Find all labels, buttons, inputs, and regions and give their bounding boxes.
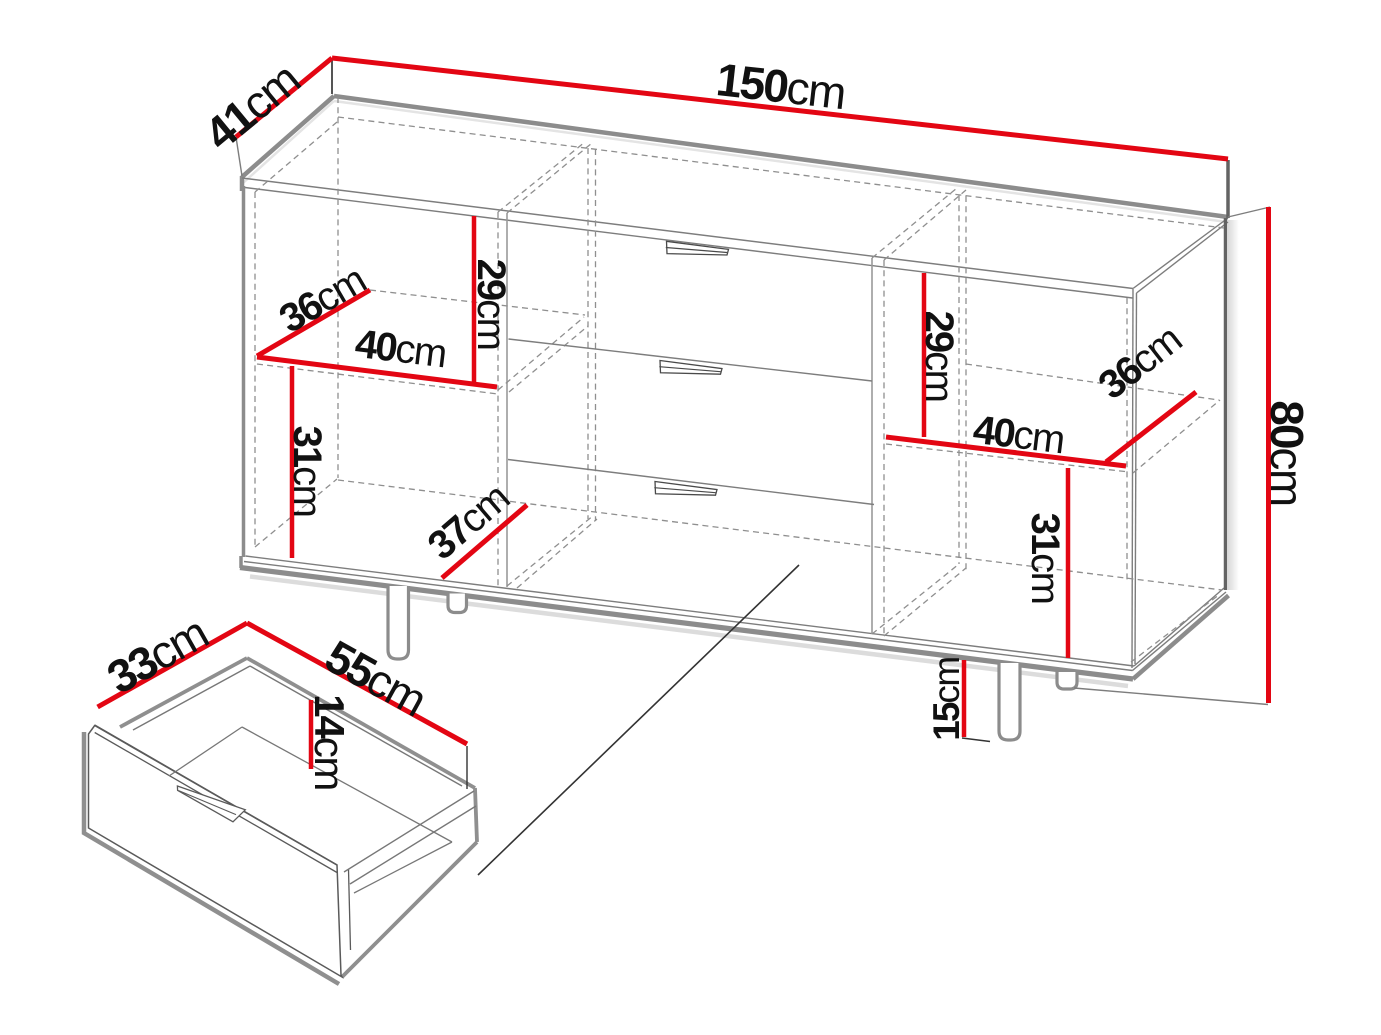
- svg-text:80cm: 80cm: [1261, 400, 1313, 506]
- svg-text:31cm: 31cm: [1023, 513, 1067, 604]
- svg-text:29cm: 29cm: [469, 259, 513, 350]
- svg-text:29cm: 29cm: [917, 311, 961, 402]
- svg-text:31cm: 31cm: [285, 426, 329, 517]
- svg-text:14cm: 14cm: [306, 694, 353, 790]
- svg-text:15cm: 15cm: [926, 657, 967, 740]
